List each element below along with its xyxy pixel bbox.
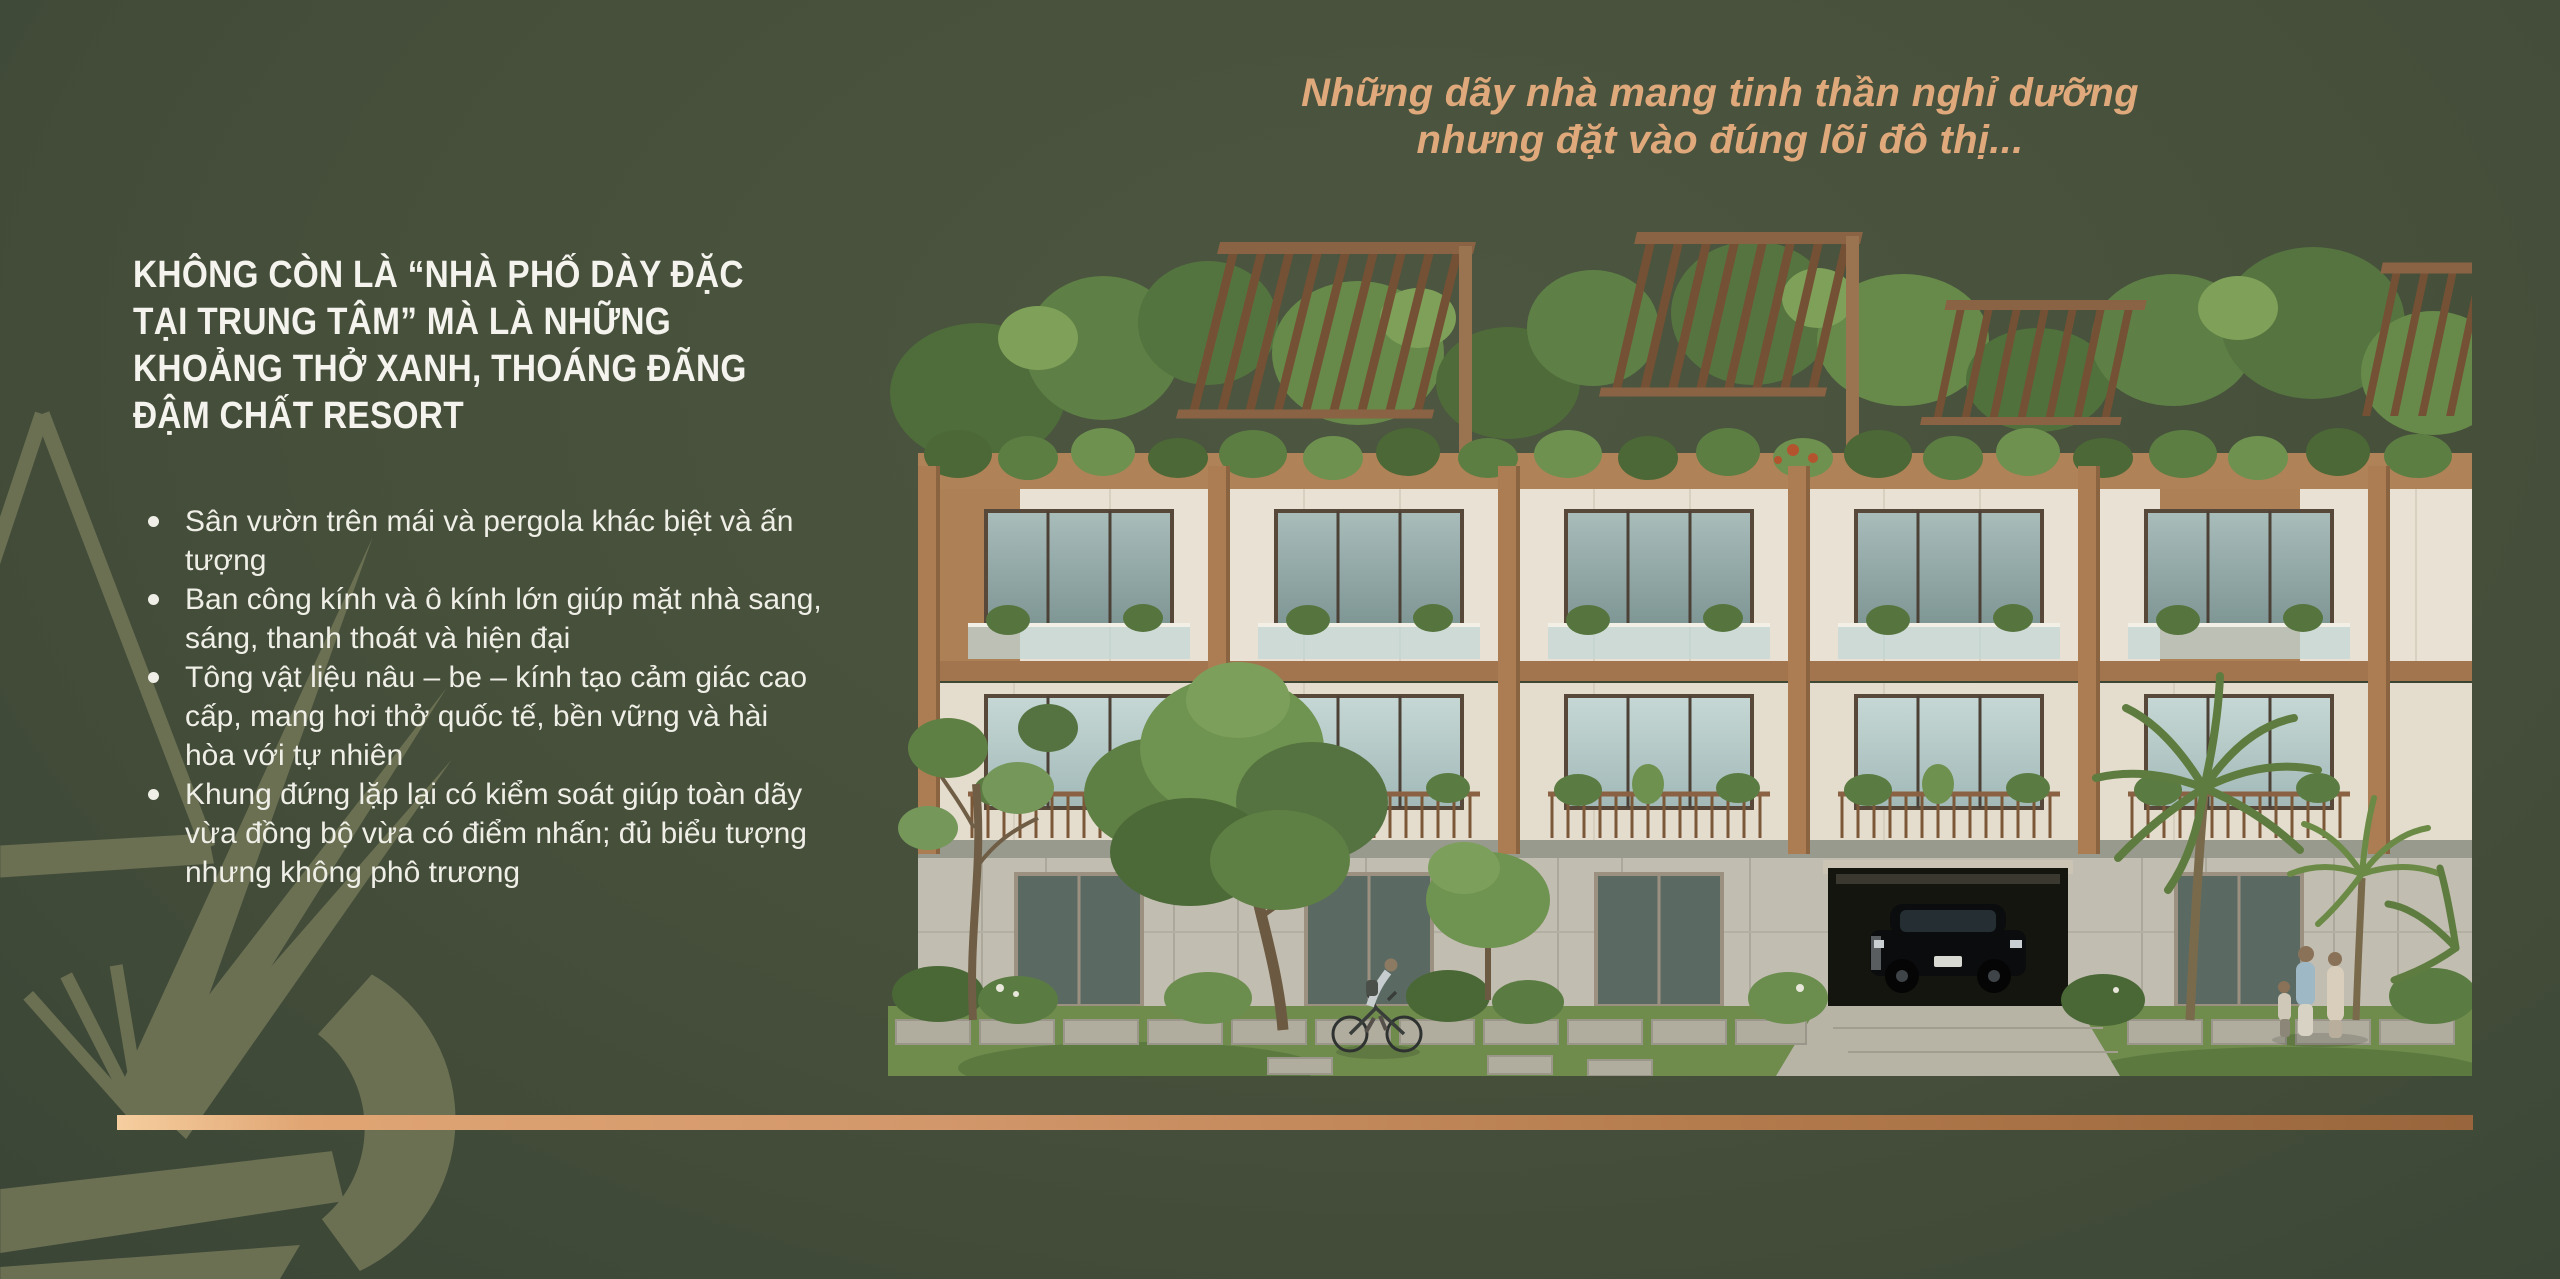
list-item: Tông vật liệu nâu – be – kính tạo cảm gi… — [148, 658, 825, 775]
tagline-line-2: nhưng đặt vào đúng lõi đô thị... — [1280, 117, 2160, 164]
hero-image — [888, 228, 2472, 1076]
headline-line: KHÔNG CÒN LÀ “NHÀ PHỐ DÀY ĐẶC — [133, 252, 747, 299]
bullet-text: Tông vật liệu nâu – be – kính tạo cảm gi… — [185, 658, 825, 775]
tagline-line-1: Những dãy nhà mang tinh thần nghỉ dưỡng — [1280, 70, 2160, 117]
list-item: Khung đứng lặp lại có kiểm soát giúp toà… — [148, 775, 825, 892]
headline-line: TẠI TRUNG TÂM” MÀ LÀ NHỮNG — [133, 299, 747, 346]
hero-image-canvas — [888, 228, 2472, 1076]
headline: KHÔNG CÒN LÀ “NHÀ PHỐ DÀY ĐẶC TẠI TRUNG … — [133, 252, 747, 440]
divider-bar — [117, 1115, 2473, 1130]
headline-line: KHOẢNG THỞ XANH, THOÁNG ĐÃNG — [133, 346, 747, 393]
list-item: Sân vườn trên mái và pergola khác biệt v… — [148, 502, 825, 580]
slide: Những dãy nhà mang tinh thần nghỉ dưỡng … — [0, 0, 2560, 1279]
bullet-dot — [148, 516, 159, 527]
headline-line: ĐẬM CHẤT RESORT — [133, 393, 747, 440]
bullet-dot — [148, 594, 159, 605]
bullet-dot — [148, 789, 159, 800]
roof-parapet — [918, 428, 2472, 491]
list-item: Ban công kính và ô kính lớn giúp mặt nhà… — [148, 580, 825, 658]
bullet-dot — [148, 672, 159, 683]
tagline: Những dãy nhà mang tinh thần nghỉ dưỡng … — [1280, 70, 2160, 164]
bullet-text: Sân vườn trên mái và pergola khác biệt v… — [185, 502, 825, 580]
garage — [1823, 860, 2073, 1006]
bullet-text: Khung đứng lặp lại có kiểm soát giúp toà… — [185, 775, 825, 892]
bullet-list: Sân vườn trên mái và pergola khác biệt v… — [148, 502, 825, 892]
bullet-text: Ban công kính và ô kính lớn giúp mặt nhà… — [185, 580, 825, 658]
